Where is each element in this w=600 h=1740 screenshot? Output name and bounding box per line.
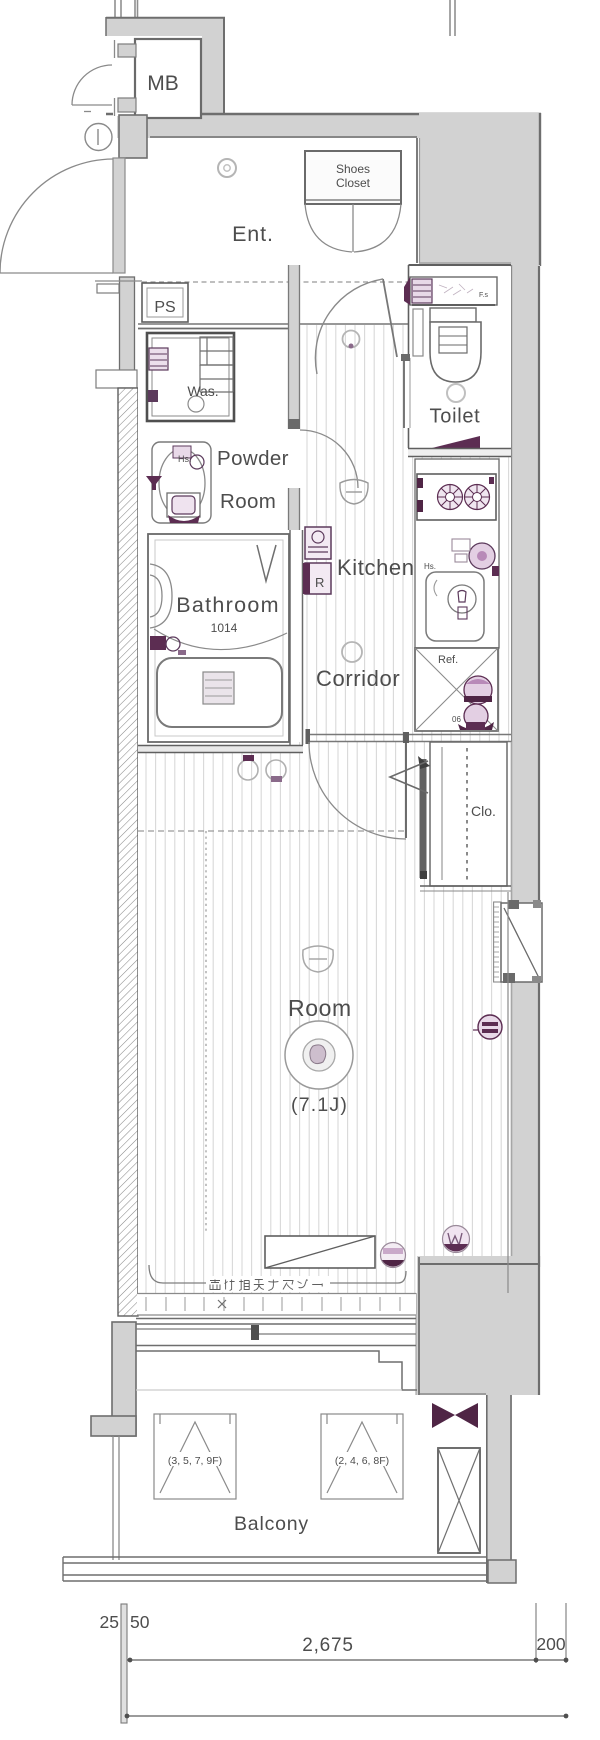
svg-text:25: 25 <box>100 1612 119 1632</box>
svg-text:Corridor: Corridor <box>316 666 400 691</box>
svg-text:(2, 4, 6, 8F): (2, 4, 6, 8F) <box>335 1455 389 1467</box>
svg-text:Bathroom: Bathroom <box>176 593 280 617</box>
svg-text:Shoes: Shoes <box>336 162 370 176</box>
svg-text:F.s: F.s <box>479 292 488 299</box>
svg-text:Kitchen: Kitchen <box>337 555 415 580</box>
svg-text:(3, 5, 7, 9F): (3, 5, 7, 9F) <box>168 1455 222 1467</box>
svg-text:Room: Room <box>220 490 276 513</box>
svg-text:Powder: Powder <box>217 447 289 470</box>
svg-text:Hs.: Hs. <box>178 454 192 464</box>
svg-text:06: 06 <box>452 715 461 724</box>
svg-text:R: R <box>315 575 324 590</box>
svg-text:50: 50 <box>130 1612 150 1632</box>
svg-text:(7.1J): (7.1J) <box>291 1094 348 1116</box>
svg-text:Balcony: Balcony <box>234 1513 309 1535</box>
svg-text:200: 200 <box>536 1634 565 1654</box>
svg-text:Clo.: Clo. <box>471 803 496 819</box>
svg-text:Room: Room <box>288 995 352 1021</box>
svg-text:MB: MB <box>147 72 179 95</box>
svg-text:Ref.: Ref. <box>438 654 458 666</box>
svg-text:Hs.: Hs. <box>424 562 436 571</box>
svg-text:2,675: 2,675 <box>302 1635 354 1656</box>
svg-text:Was.: Was. <box>187 383 218 399</box>
svg-text:Toilet: Toilet <box>430 406 481 428</box>
svg-text:Closet: Closet <box>336 176 371 190</box>
svg-text:Ent.: Ent. <box>232 222 274 246</box>
svg-text:PS: PS <box>154 299 175 316</box>
svg-text:1014: 1014 <box>211 621 238 635</box>
